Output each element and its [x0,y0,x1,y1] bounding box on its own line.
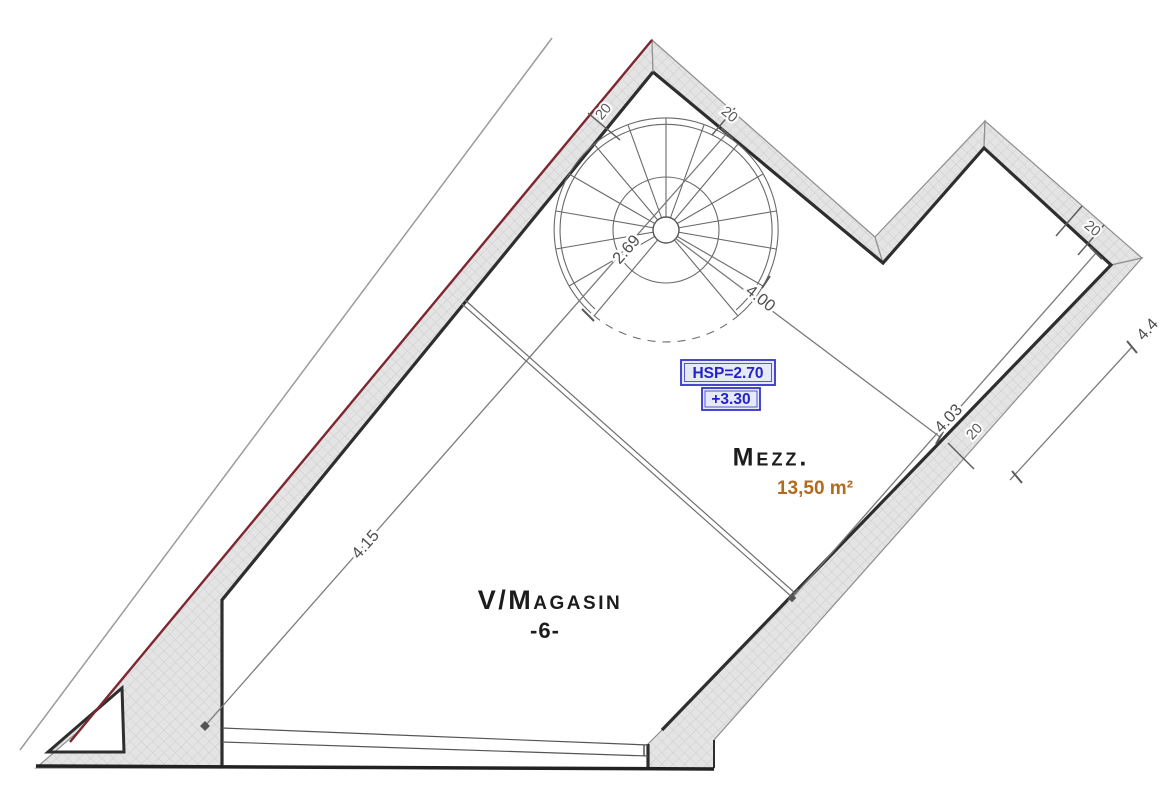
dim-line-magasin [205,133,727,726]
wall-upper-right-c [984,121,1142,265]
boundary-line [20,38,552,750]
magasin-name: V/Magasin [478,585,622,615]
wall-upper-right-a [652,40,883,263]
floor-plan-drawing: 4.15 2.69 4.00 4.03 4.4 20 20 20 20 HSP=… [0,0,1170,785]
storefront-window [222,728,648,756]
floor-plan-canvas: 4.15 2.69 4.00 4.03 4.4 20 20 20 20 HSP=… [0,0,1170,785]
dim-label-44: 4.4 [1133,315,1162,344]
height-annotation: HSP=2.70 +3.30 [681,360,775,410]
magasin-number: -6- [530,618,560,643]
ceiling-height-label: HSP=2.70 [692,365,763,382]
facade-red-line [70,40,652,742]
wall-upper-right-b [875,121,985,263]
level-label: +3.30 [711,391,750,408]
dim-label-400: 4.00 [742,282,778,316]
stair-dashed-arc [591,313,739,342]
stair-newel-post [653,217,679,243]
wall-lower-right [648,258,1142,768]
mezzanine-area: 13,50 m² [777,478,853,499]
mezzanine-name: Mezz. [733,444,810,472]
